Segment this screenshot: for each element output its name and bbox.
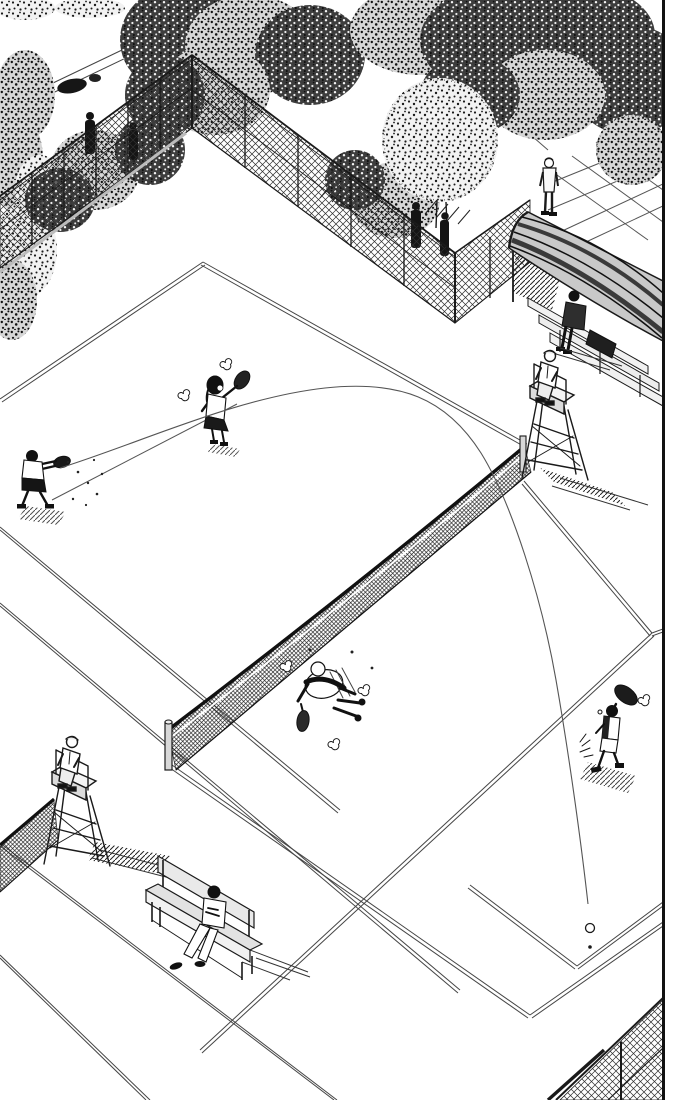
tennis-ball: [586, 924, 595, 933]
ball-mark-dot: [588, 945, 592, 949]
net-post-right: [520, 436, 526, 472]
tennis-scene-illustration: Aerial isometric view of outdoor tennis …: [0, 0, 700, 1100]
net-post-left: [165, 722, 172, 770]
manga-panel: Aerial isometric view of outdoor tennis …: [0, 0, 700, 1100]
panel-border-right: [662, 0, 665, 1100]
tennis-ball-small: [598, 710, 602, 714]
round-bush: [596, 115, 668, 185]
